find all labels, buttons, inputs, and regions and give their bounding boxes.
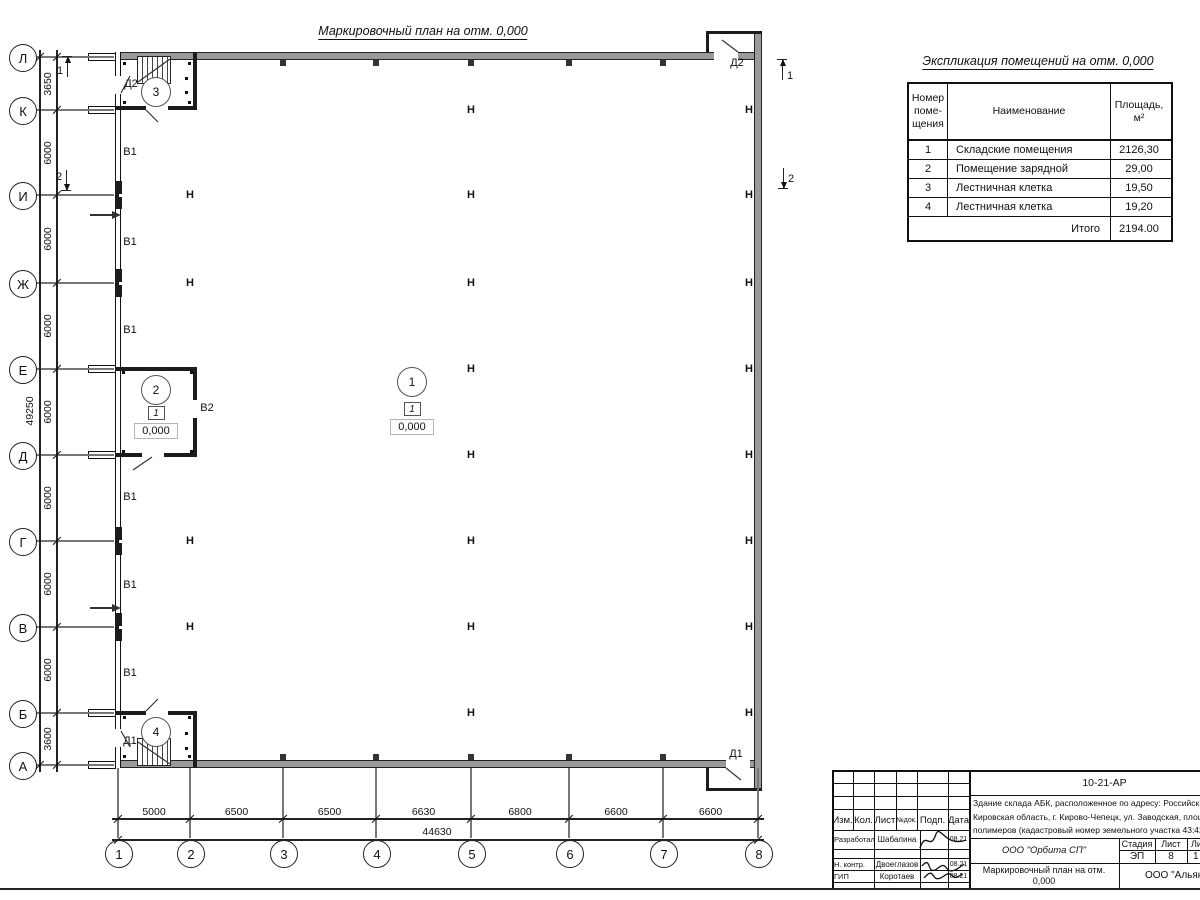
person-role: ГИП (834, 869, 874, 883)
person-name: Коротаев (874, 869, 920, 883)
titleblock-line (832, 770, 1200, 772)
explication-title: Экспликация помещений на отм. 0,000 (922, 52, 1153, 70)
explication-row: 3Лестничная клетка19,50 (909, 179, 1171, 198)
room-number-cell: 3 (909, 179, 948, 197)
titleblock-line (969, 795, 1200, 796)
explication-table: Номер поме- щения Наименование Площадь, … (907, 82, 1173, 242)
sheets-label: Листов (1191, 838, 1200, 850)
sheet-frame-bottom (0, 888, 1200, 890)
doc-number: 10-21-АР (969, 770, 1200, 795)
room-area-cell: 2126,30 (1111, 141, 1167, 159)
room-name-cell: Помещение зарядной (948, 160, 1111, 178)
room-number-cell: 4 (909, 198, 948, 216)
titleblock-line (1187, 838, 1188, 863)
explication-body: 1Складские помещения2126,302Помещение за… (909, 141, 1171, 217)
person-name: Шабалина (874, 832, 920, 846)
room-name-cell: Лестничная клетка (948, 198, 1111, 216)
explication-title-text: Экспликация помещений на отм. 0,000 (922, 54, 1153, 70)
sheets-value: 1 (1193, 850, 1200, 863)
project-address: Здание склада АБК, расположенное по адре… (973, 797, 1200, 838)
explication-header-row: Номер поме- щения Наименование Площадь, … (909, 84, 1171, 141)
explication-col-name: Наименование (948, 84, 1111, 139)
room-name-cell: Складские помещения (948, 141, 1111, 159)
room-number-cell: 1 (909, 141, 948, 159)
drawing-name: Маркировочный план на отм. 0,000 (974, 863, 1114, 888)
explication-total-value: 2194.00 (1111, 217, 1167, 240)
room-name-cell: Лестничная клетка (948, 179, 1111, 197)
titleblock-line (969, 770, 971, 888)
org-designer: ООО "Орбита СП" (969, 838, 1119, 863)
sheet-value: 8 (1155, 850, 1187, 863)
room-area-cell: 19,20 (1111, 198, 1167, 216)
revision-col-label: Дата (941, 812, 977, 828)
room-number-cell: 2 (909, 160, 948, 178)
titleblock-line (969, 863, 1200, 864)
explication-total-row: Итого 2194.00 (909, 217, 1171, 240)
person-date: 08.21 (948, 832, 969, 846)
person-role: Разработал (834, 832, 874, 846)
room-area-cell: 19,50 (1111, 179, 1167, 197)
drawing-sheet: Маркировочный план на отм. 0,000 ННННННН… (0, 0, 1200, 900)
titleblock-line (969, 838, 1200, 839)
explication-row: 4Лестничная клетка19,20 (909, 198, 1171, 217)
org-customer: ООО "Альянс (1145, 863, 1200, 888)
explication-row: 1Складские помещения2126,30 (909, 141, 1171, 160)
explication-col-number: Номер поме- щения (909, 84, 948, 139)
titleblock-line (1155, 838, 1156, 863)
stage-label: Стадия (1119, 838, 1155, 850)
explication-total-label: Итого (909, 217, 1111, 240)
stage-value: ЭП (1119, 850, 1155, 863)
explication-col-area: Площадь, м² (1111, 84, 1167, 139)
sheet-label: Лист (1155, 838, 1187, 850)
person-date: 08.21 (948, 869, 969, 883)
titleblock-line (1119, 838, 1120, 888)
room-area-cell: 29,00 (1111, 160, 1167, 178)
explication-row: 2Помещение зарядной29,00 (909, 160, 1171, 179)
titleblock-line (920, 830, 921, 888)
